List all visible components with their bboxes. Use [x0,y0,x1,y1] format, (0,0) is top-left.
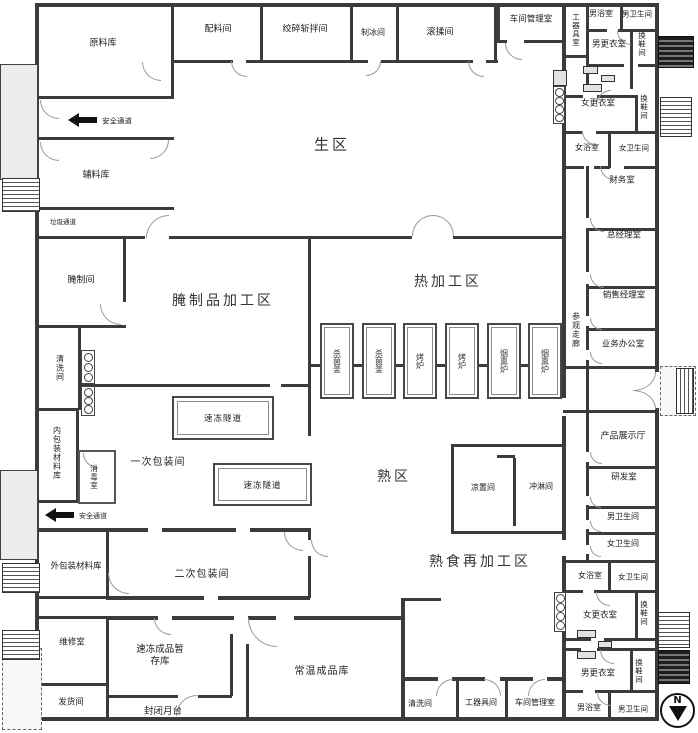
room-label-outer-packaging-material-store: 外包装材料库 [50,562,102,573]
room-label-shoe-changing-room-2: 换鞋间 [639,94,650,120]
room-label-auxiliary-material-store: 辅料库 [82,170,109,181]
freezing-tunnel-2: 速冻隧道 [213,463,312,506]
room-label-dispatch-room: 发货间 [58,698,84,709]
wall [311,364,320,367]
equipment-smoker-1: 烟熏炉 [487,323,521,399]
room-label-inner-packaging-material-store: 内包装材料库 [52,426,63,464]
stairs [658,612,690,648]
equipment-label: 烟熏炉 [540,349,551,373]
stairs [2,563,40,593]
room-label-ambient-product-store: 常温成品库 [295,666,350,679]
wall [563,590,583,593]
wall [38,616,108,619]
wall [563,410,656,413]
door-arc [311,540,328,557]
stairs [2,630,40,660]
door-arc [142,62,161,81]
room-label-mens-changing-room-top: 男更衣室 [592,40,626,51]
wall [198,695,232,698]
room-label-visitor-corridor: 参观走廊 [571,312,582,348]
equipment-label: 杀菌釜 [374,349,385,373]
tunnel-label: 速冻隧道 [204,412,242,424]
wall [106,695,178,698]
room-label-tumbling-room: 滚揉间 [426,27,453,38]
wash-basins [554,592,566,632]
wall [308,236,311,436]
wall [497,455,515,458]
door-arc [154,618,171,635]
room-label-mens-toilet-office: 男卫生间 [607,512,639,522]
room-label-general-manager-office: 总经理室 [607,231,641,242]
door-arc [40,100,59,119]
wall [38,207,174,210]
wall [596,131,655,134]
safety-passage-arrow [79,117,97,123]
entrance-gap [655,372,659,408]
room-label-washing-room: 清洗间 [55,355,66,382]
door-arc [590,521,601,532]
room-label-disinfection-room: 消毒室 [89,464,100,490]
locker-bench [577,651,596,659]
room-label-womens-changing-room-top: 女更衣室 [581,99,615,110]
wall [38,528,308,532]
wall [106,596,204,600]
zone-label-raw-area: 生区 [314,134,350,155]
wash-basins [81,350,95,384]
wall [78,384,270,387]
wall [169,236,412,239]
room-label-tool-room-bottom: 工器具间 [465,698,497,708]
wall [405,598,441,601]
wall [106,616,109,720]
room-label-mens-bathroom-top: 男浴室 [589,9,613,19]
door-arc [633,390,656,409]
safety-passage-label: 安全通道 [79,511,107,521]
room-label-womens-bathroom-bottom: 女浴室 [578,571,602,581]
door-arc [108,573,129,594]
wall [106,528,109,596]
door-arc [590,452,602,464]
room-label-washing-room-bottom: 清洗间 [408,699,432,709]
room-label-rnd-room: 研发室 [611,473,637,484]
door-arc [150,140,169,159]
wall [453,236,563,239]
room-label-mens-toilet-top: 男卫生间 [622,9,652,18]
room-label-mens-changing-room-bottom: 男更衣室 [581,669,615,680]
wall [547,677,564,681]
wall [123,236,126,302]
wall [563,366,656,369]
room-label-maintenance-room: 维修室 [59,638,85,649]
north-arrow-icon [669,706,687,721]
wall [486,60,498,63]
door-arc [484,679,501,696]
equipment-smoker-2: 烟熏炉 [528,323,562,399]
wall [246,60,368,63]
zone-label-cured-processing-area: 腌制品加工区 [172,290,274,310]
door-gap [236,528,250,532]
wall [396,3,399,62]
entrance-steps [676,368,694,414]
door-arc [231,61,247,77]
door-arc [100,304,121,325]
wall [38,96,174,99]
room-label-enclosed-dock: 封闭月台 [144,706,182,718]
room-label-cooling-room: 凉置间 [471,483,495,493]
wash-basins [553,86,565,124]
door-arc [590,352,602,364]
wall [308,528,311,540]
door-arc [633,372,656,391]
wall [294,616,404,620]
door-arc [146,215,169,238]
wall [565,95,583,98]
door-arc [433,215,454,236]
locker-bench [583,66,598,74]
wall [513,458,516,526]
room-label-womens-toilet-office: 女卫生间 [607,539,639,549]
equipment-sterilizer-2: 杀菌釜 [362,323,396,399]
room-label-shoe-changing-room-1: 换鞋间 [637,31,648,57]
room-label-ingredient-room: 配料间 [204,24,231,35]
wall [106,616,158,620]
wall [281,384,310,387]
wall [401,677,438,681]
door-arc [600,650,614,664]
room-label-workshop-office-bottom: 车间管理室 [515,698,555,708]
wall [350,3,353,62]
equipment-label: 杀菌釜 [332,349,343,373]
wall [38,683,108,686]
door-gap [148,528,162,532]
room-label-grinding-chopping-room: 绞碎斩拌间 [282,24,327,35]
room-label-raw-material-store: 原料库 [89,38,116,49]
wall [230,634,233,696]
door-arc [528,679,545,696]
wall [172,616,234,620]
room-label-sales-manager-office: 销售经理室 [603,291,646,302]
wall [608,563,611,593]
room-label-mens-bathroom-bottom: 男浴室 [577,703,601,713]
room-label-product-showroom: 产品展示厅 [600,431,645,442]
zone-label-cooked-area: 熟区 [377,466,411,486]
room-label-shoe-changing-room-4: 换鞋间 [634,658,645,684]
wall [624,166,655,169]
wall [608,134,611,168]
room-label-business-office: 业务办公室 [602,340,645,351]
wall [38,596,108,599]
door-arc [248,618,277,647]
room-label-tool-store: 工器具室 [571,13,582,47]
door-arc [468,61,484,77]
door-arc [596,592,610,606]
north-letter: N [662,695,693,706]
wall [308,556,311,598]
tunnel-label: 速冻隧道 [243,479,281,491]
wall [171,60,233,63]
stairs [658,36,694,68]
room-label-workshop-office-top: 车间管理室 [510,15,553,26]
wall [35,717,659,721]
room-label-curing-room: 腌制间 [67,275,94,286]
wall [38,408,78,411]
equipment-oven-2: 烤炉 [445,323,479,399]
equipment-sterilizer-1: 杀菌釜 [320,323,354,399]
equipment-label: 烟熏炉 [499,349,510,373]
wall [566,55,588,58]
equipment-oven-1: 烤炉 [403,323,437,399]
locker-bench [577,630,596,638]
wall [401,598,405,718]
wall [381,60,473,63]
room-label-secondary-packaging-room: 二次包装间 [175,569,230,582]
wall [38,325,126,328]
wall [586,532,656,535]
wall [589,29,607,32]
wall [563,690,583,693]
door-gap [562,540,566,556]
garbage-passage-label: 垃圾通道 [50,218,76,226]
loading-platform-mid-left [0,470,38,560]
dock-apron-bottom-left [2,648,42,730]
wall [586,286,656,289]
north-arrow-compass: N [660,693,695,728]
wall [638,64,655,67]
wall [218,596,310,600]
room-label-mens-toilet-bottom: 男卫生间 [618,704,648,713]
door-arc [412,215,433,236]
shoe-rack [553,70,567,86]
door-arc [366,61,381,76]
wall [38,236,145,239]
room-label-womens-changing-room-bottom: 女更衣室 [583,611,617,622]
wall [566,131,582,134]
equipment-label: 烤炉 [457,353,468,369]
room-label-womens-toilet-bottom: 女卫生间 [618,572,648,581]
room-label-shoe-changing-room-3: 换鞋间 [639,600,650,626]
locker-bench [583,84,602,92]
room-label-primary-packaging-room: 一次包装间 [131,457,186,470]
wall [497,3,500,43]
zone-label-cooked-reprocessing-area: 熟食再加工区 [429,551,531,571]
locker-bench [598,641,612,648]
zone-label-hot-processing-area: 热加工区 [414,271,482,291]
safety-passage-arrow [56,512,74,518]
wall [456,677,459,719]
stairs [660,97,692,137]
door-gap [562,398,566,416]
door-arc [40,142,59,161]
wall [586,466,656,469]
wall [505,677,508,719]
wall [246,644,249,718]
locker-bench [601,75,615,82]
door-arc [505,43,522,60]
safety-passage-label: 安全通道 [102,116,132,127]
stairs [658,650,690,684]
wall [171,3,174,99]
room-label-womens-bathroom-top: 女浴室 [575,143,599,153]
factory-floor-plan: 杀菌釜 杀菌釜 烤炉 烤炉 烟熏炉 烟熏炉 速冻隧道 速冻隧道 [0,0,698,733]
wash-basins [81,386,95,416]
room-label-finance-office: 财务室 [609,176,635,187]
room-label-frozen-product-buffer-store: 速冻成品暂存库 [132,644,188,668]
stairs [2,178,40,212]
room-label-shower-room: 冲淋间 [529,482,553,492]
wall [38,500,78,503]
freezing-tunnel-1: 速冻隧道 [172,396,274,440]
wall [563,638,591,641]
door-arc [590,546,601,557]
wall [260,3,263,62]
room-label-ice-making-room: 制冰间 [361,28,385,38]
door-arc [436,679,453,696]
wall [524,40,565,43]
equipment-label: 烤炉 [415,353,426,369]
door-arc [284,532,303,551]
loading-platform-top-left [0,64,38,180]
room-label-womens-toilet-top: 女卫生间 [619,143,649,152]
wall [566,166,584,169]
